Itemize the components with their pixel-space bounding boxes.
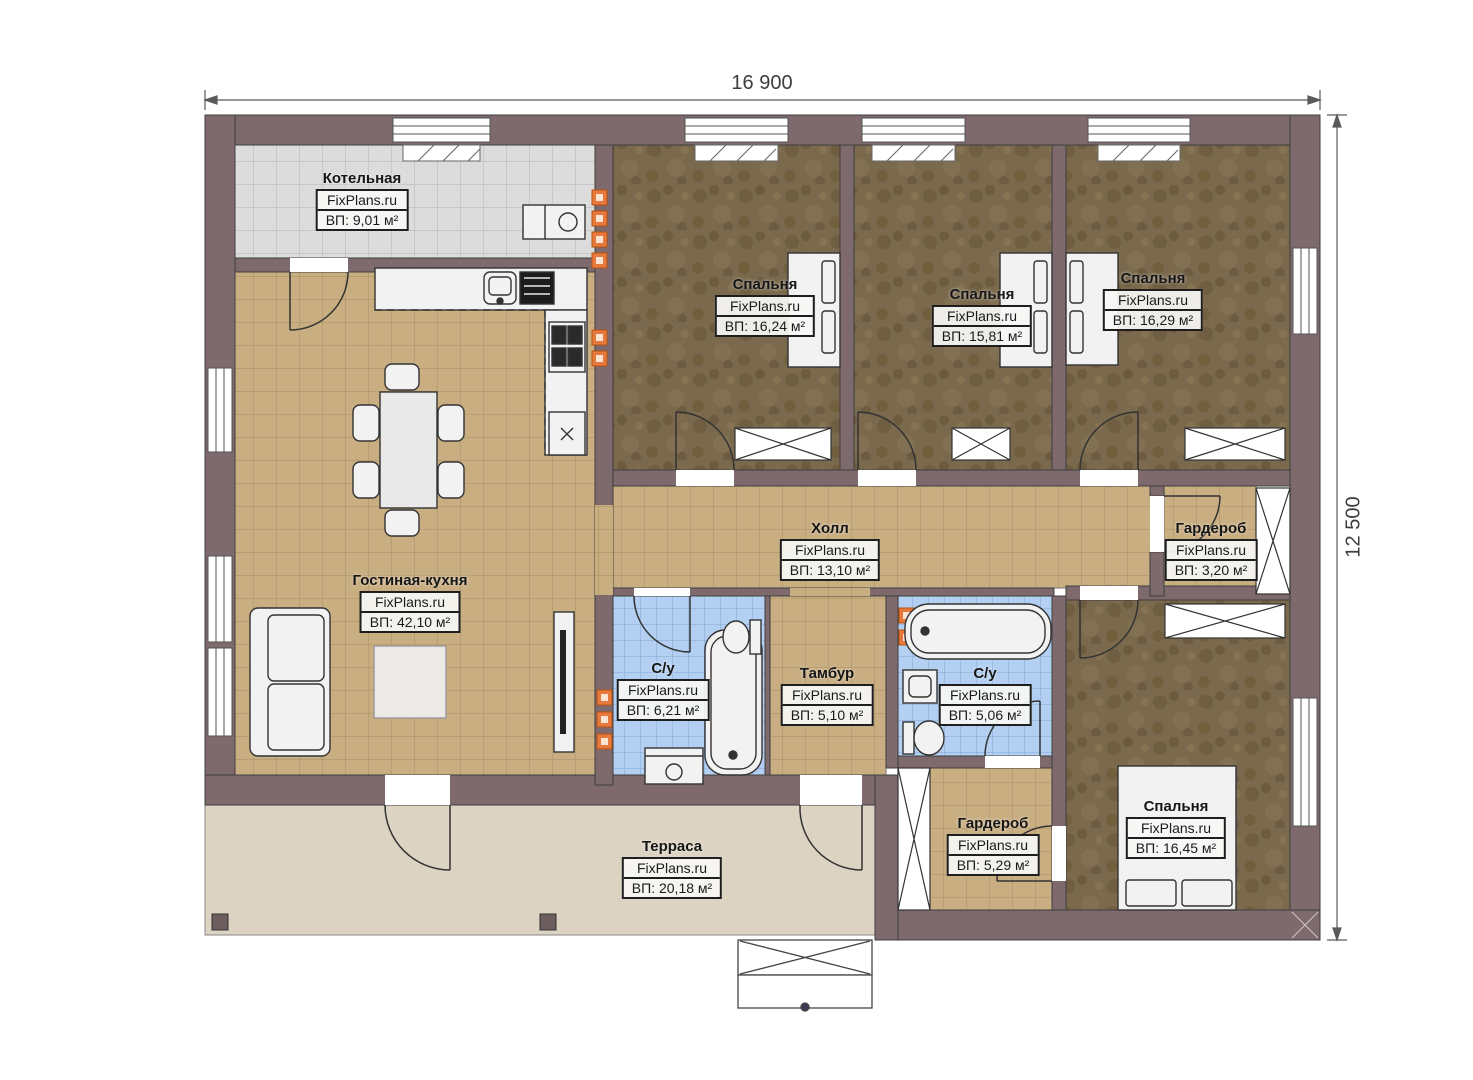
room-label-bathroom-1: С/у FixPlans.ru ВП: 6,21 м²	[617, 660, 710, 721]
dimension-height-label: 12 500	[1343, 496, 1366, 557]
washing-machine-icon	[645, 748, 703, 784]
brand-watermark: FixPlans.ru	[949, 836, 1038, 856]
tv-stand	[554, 612, 574, 752]
room-area: ВП: 5,10 м²	[783, 706, 872, 724]
brand-watermark: FixPlans.ru	[362, 593, 458, 613]
room-area: ВП: 16,29 м²	[1105, 311, 1201, 329]
window-left-2	[208, 556, 232, 642]
boiler-unit-icon	[523, 205, 585, 239]
room-label-wardrobe-2: Гардероб FixPlans.ru ВП: 5,29 м²	[947, 815, 1040, 876]
window-top-4	[1088, 118, 1190, 142]
room-area: ВП: 6,21 м²	[619, 701, 708, 719]
brand-watermark: FixPlans.ru	[1105, 291, 1201, 311]
room-label-living-kitchen: Гостиная-кухня FixPlans.ru ВП: 42,10 м²	[353, 572, 468, 633]
room-label-boiler: Котельная FixPlans.ru ВП: 9,01 м²	[316, 170, 409, 231]
sink2-icon	[903, 670, 937, 703]
room-label-terrace: Терраса FixPlans.ru ВП: 20,18 м²	[622, 838, 722, 899]
brand-watermark: FixPlans.ru	[1128, 819, 1224, 839]
coffee-table	[374, 646, 446, 718]
window-top-3	[862, 118, 965, 142]
room-area: ВП: 16,45 м²	[1128, 839, 1224, 857]
closet-bedroom4	[1165, 604, 1285, 638]
window-top-2	[685, 118, 788, 142]
window-left-1	[208, 368, 232, 452]
room-area: ВП: 9,01 м²	[318, 211, 407, 229]
brand-watermark: FixPlans.ru	[783, 686, 872, 706]
room-label-wardrobe-1: Гардероб FixPlans.ru ВП: 3,20 м²	[1165, 520, 1258, 581]
dimension-width-label: 16 900	[731, 72, 792, 95]
room-area: ВП: 42,10 м²	[362, 613, 458, 631]
entrance-steps	[738, 940, 872, 1011]
boiler-floor	[235, 145, 595, 258]
window-left-3	[208, 648, 232, 736]
room-label-bedroom-4: Спальня FixPlans.ru ВП: 16,45 м²	[1126, 798, 1226, 859]
brand-watermark: FixPlans.ru	[941, 686, 1030, 706]
room-label-bedroom-3: Спальня FixPlans.ru ВП: 16,29 м²	[1103, 270, 1203, 331]
kitchen-drainer-icon	[520, 272, 554, 304]
room-area: ВП: 16,24 м²	[717, 317, 813, 335]
room-label-bathroom-2: С/у FixPlans.ru ВП: 5,06 м²	[939, 665, 1032, 726]
room-area: ВП: 5,29 м²	[949, 856, 1038, 874]
brand-watermark: FixPlans.ru	[934, 307, 1030, 327]
bathtub2-icon	[905, 604, 1051, 659]
closet-bedroom3	[1185, 428, 1285, 460]
window-top-1	[393, 118, 490, 142]
closet-wardrobe1	[1256, 488, 1290, 594]
room-area: ВП: 5,06 м²	[941, 706, 1030, 724]
brand-watermark: FixPlans.ru	[782, 541, 878, 561]
room-area: ВП: 20,18 м²	[624, 879, 720, 897]
closet-bedroom1	[735, 428, 831, 460]
room-label-bedroom-1: Спальня FixPlans.ru ВП: 16,24 м²	[715, 276, 815, 337]
room-label-tambour: Тамбур FixPlans.ru ВП: 5,10 м²	[781, 665, 874, 726]
room-area: ВП: 15,81 м²	[934, 327, 1030, 345]
closet-wardrobe2	[898, 768, 930, 910]
room-area: ВП: 13,10 м²	[782, 561, 878, 579]
window-right-1	[1293, 248, 1317, 334]
room-label-bedroom-2: Спальня FixPlans.ru ВП: 15,81 м²	[932, 286, 1032, 347]
sofa	[250, 608, 330, 756]
brand-watermark: FixPlans.ru	[1167, 541, 1256, 561]
closet-bedroom2	[952, 428, 1010, 460]
brand-watermark: FixPlans.ru	[624, 859, 720, 879]
window-right-2	[1293, 698, 1317, 826]
hall-floor	[613, 486, 1164, 588]
floor-plan-page: 16 900 12 500 Котельная FixPlans.ru ВП: …	[0, 0, 1473, 1080]
toilet1-icon	[723, 620, 761, 654]
brand-watermark: FixPlans.ru	[717, 297, 813, 317]
room-area: ВП: 3,20 м²	[1167, 561, 1256, 579]
room-label-hall: Холл FixPlans.ru ВП: 13,10 м²	[780, 520, 880, 581]
brand-watermark: FixPlans.ru	[619, 681, 708, 701]
brand-watermark: FixPlans.ru	[318, 191, 407, 211]
